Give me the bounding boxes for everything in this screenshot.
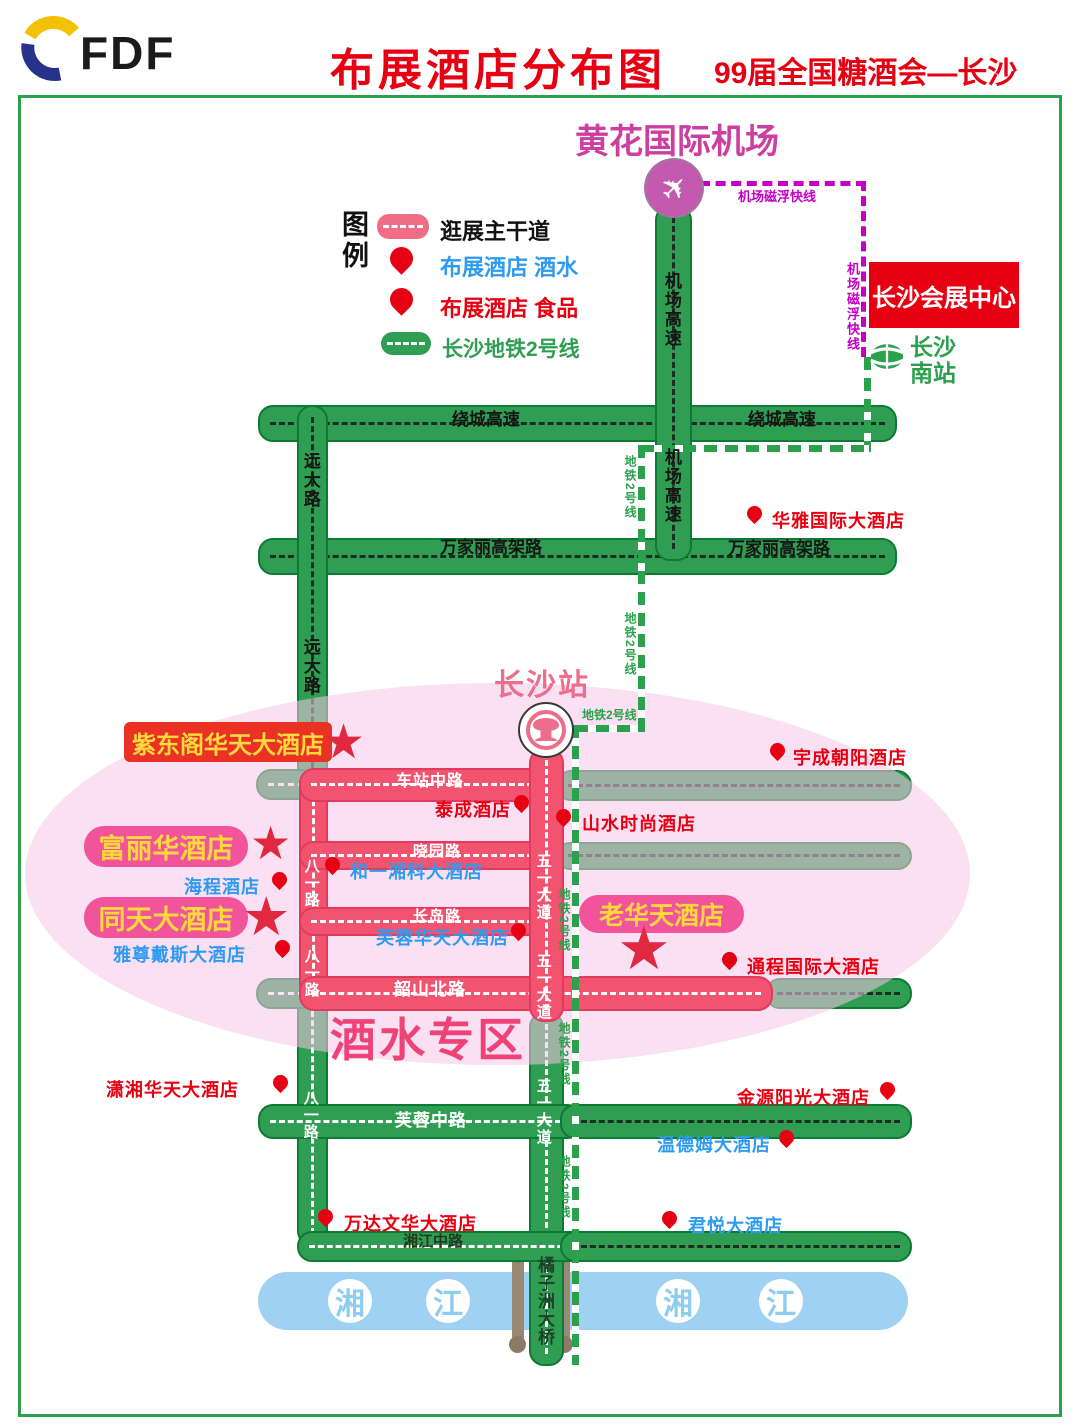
cfdf-logo-icon [16, 14, 82, 84]
hotel-label: 通程国际大酒店 [747, 953, 880, 979]
maglev-line-segment [861, 181, 866, 357]
road-label: 五一大道 [535, 953, 551, 1021]
bridge-rail-left [512, 1253, 524, 1343]
bridge-label: 橘子洲大桥 [532, 1256, 557, 1346]
metro-line2-label: 地铁2号线 [558, 1022, 570, 1087]
hotel-label: 泰成酒店 [435, 796, 511, 822]
plane-glyph: ✈ [651, 165, 697, 211]
road-label: 机场高速 [662, 448, 680, 524]
changsha-station-label: 长沙站 [494, 660, 590, 704]
legend-item-main-route: 逛展主干道 [440, 214, 550, 246]
metro-line2-segment [638, 445, 645, 732]
convention-center-box: 长沙会展中心 [869, 262, 1019, 328]
airplane-icon: ✈ [644, 158, 704, 218]
star-icon: ★ [322, 719, 365, 767]
metro-line2-label: 地铁2号线 [624, 612, 636, 677]
river-name-char: 江 [426, 1279, 470, 1323]
logo-text: FDF [80, 26, 175, 80]
legend-item-hotel-wine: 布展酒店 酒水 [440, 250, 578, 282]
river-name-char: 湘 [328, 1279, 372, 1323]
bridge-rail-cap [509, 1336, 526, 1353]
road-label: 万家丽高架路 [728, 540, 830, 558]
metro-line2-segment [575, 725, 645, 732]
hotel-label: 万达文华大酒店 [344, 1210, 477, 1236]
metro-line2-label: 地铁2号线 [582, 709, 637, 721]
page-subtitle: 99届全国糖酒会—长沙 [714, 48, 1017, 92]
hotel-label: 和一湘科大酒店 [350, 858, 483, 884]
road-label: 远大路 [301, 452, 319, 509]
featured-hotel-box: 紫东阁华天大酒店 [124, 722, 332, 762]
road-label: 远大路 [301, 638, 319, 695]
road-label: 韶山北路 [394, 981, 466, 999]
maglev-label: 机场磁浮快线 [738, 190, 816, 203]
hotel-label: 芙蓉华天大酒店 [376, 924, 509, 950]
road-label: 车站中路 [396, 774, 464, 791]
metro-line2-segment [572, 725, 579, 1365]
hotel-label: 宇成朝阳酒店 [793, 744, 907, 770]
road-label: 长岛路 [413, 909, 461, 925]
featured-hotel-box: 富丽华酒店 [84, 826, 248, 867]
legend-item-hotel-food: 布展酒店 食品 [440, 291, 578, 323]
road-label: 湘江中路 [403, 1234, 463, 1250]
hotel-label: 温德姆大酒店 [657, 1131, 771, 1157]
legend-pink-road-sample [377, 214, 429, 239]
star-icon: ★ [242, 890, 290, 944]
road-label: 芙蓉中路 [395, 1112, 467, 1130]
hotel-distribution-map-page: FDF 布展酒店分布图 99届全国糖酒会—长沙 图例 逛展主干道 布展酒店 酒水… [0, 0, 1080, 1428]
metro-line2-label: 地铁2号线 [558, 1155, 570, 1220]
road-label: 五一大道 [535, 853, 551, 921]
wine-zone-label: 酒水专区 [330, 1004, 526, 1070]
page-title: 布展酒店分布图 [330, 34, 666, 98]
south-station-line2: 南站 [910, 360, 956, 386]
hotel-label: 华雅国际大酒店 [772, 507, 905, 533]
legend-title: 图例 [334, 210, 373, 272]
road-label: 八一路 [302, 1090, 318, 1141]
river-name-char: 江 [759, 1279, 803, 1323]
road-label: 绕城高速 [452, 411, 520, 429]
hotel-label: 潇湘华天大酒店 [106, 1076, 239, 1102]
maglev-line-segment [700, 181, 866, 186]
star-icon: ★ [617, 919, 671, 979]
legend-item-metro: 长沙地铁2号线 [442, 333, 580, 363]
road-label: 八一路 [303, 858, 319, 909]
star-icon: ★ [250, 820, 291, 866]
south-station-line1: 长沙 [910, 334, 956, 360]
featured-hotel-box: 同天大酒店 [84, 897, 248, 938]
south-station-label: 长沙 南站 [910, 334, 956, 387]
metro-logo-icon [868, 340, 906, 373]
railway-station-icon [518, 702, 574, 758]
airport-label: 黄花国际机场 [575, 114, 779, 163]
maglev-label: 机场磁浮快线 [846, 262, 859, 352]
road-label: 绕城高速 [748, 411, 816, 429]
road-label: 机场高速 [662, 272, 680, 348]
road-label: 五一大道 [535, 1078, 551, 1146]
metro-line2-label: 地铁2号线 [558, 888, 570, 953]
hotel-label: 君悦大酒店 [688, 1212, 783, 1238]
hotel-label: 金源阳光大酒店 [737, 1084, 870, 1110]
hotel-label: 雅尊戴斯大酒店 [113, 941, 246, 967]
river-name-char: 湘 [656, 1279, 700, 1323]
legend-metro-sample [381, 332, 431, 355]
hotel-label: 山水时尚酒店 [582, 810, 696, 836]
metro-line2-label: 地铁2号线 [624, 455, 636, 520]
metro-line2-label: 地铁2号线 [752, 429, 807, 441]
road-label: 八一路 [303, 948, 319, 999]
road-label: 万家丽高架路 [440, 539, 542, 557]
